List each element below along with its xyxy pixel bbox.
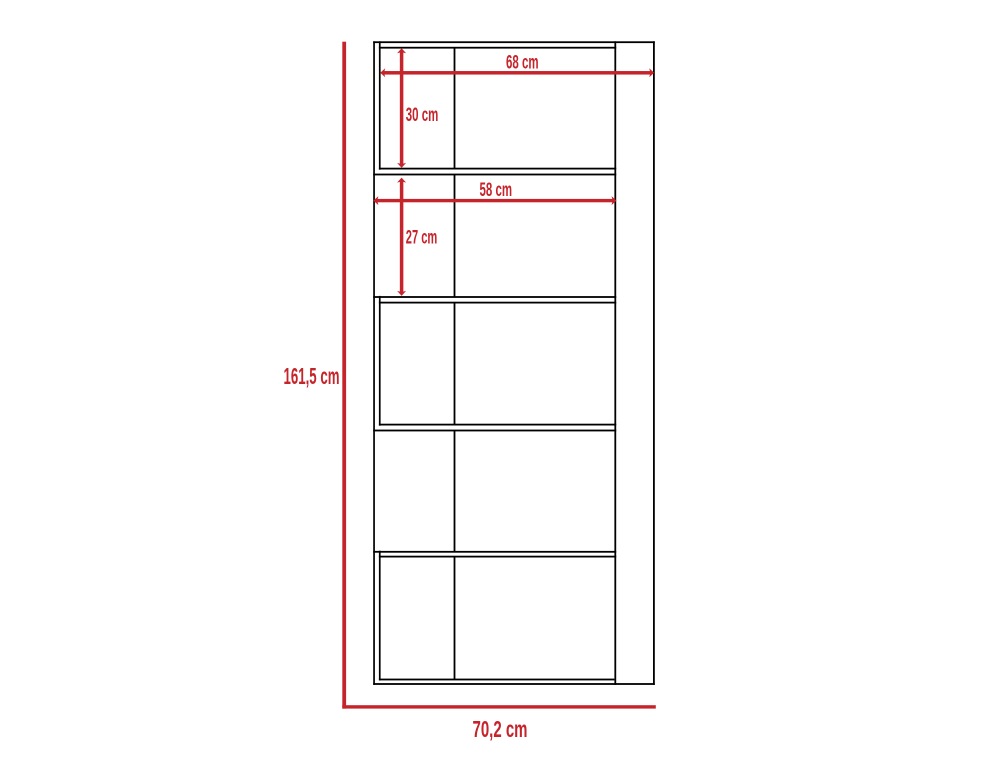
svg-text:70,2 cm: 70,2 cm — [473, 716, 528, 742]
svg-text:30 cm: 30 cm — [406, 105, 439, 126]
svg-text:68 cm: 68 cm — [506, 52, 539, 73]
svg-text:161,5 cm: 161,5 cm — [284, 363, 340, 389]
svg-text:27 cm: 27 cm — [406, 227, 438, 248]
svg-text:58 cm: 58 cm — [480, 180, 513, 201]
